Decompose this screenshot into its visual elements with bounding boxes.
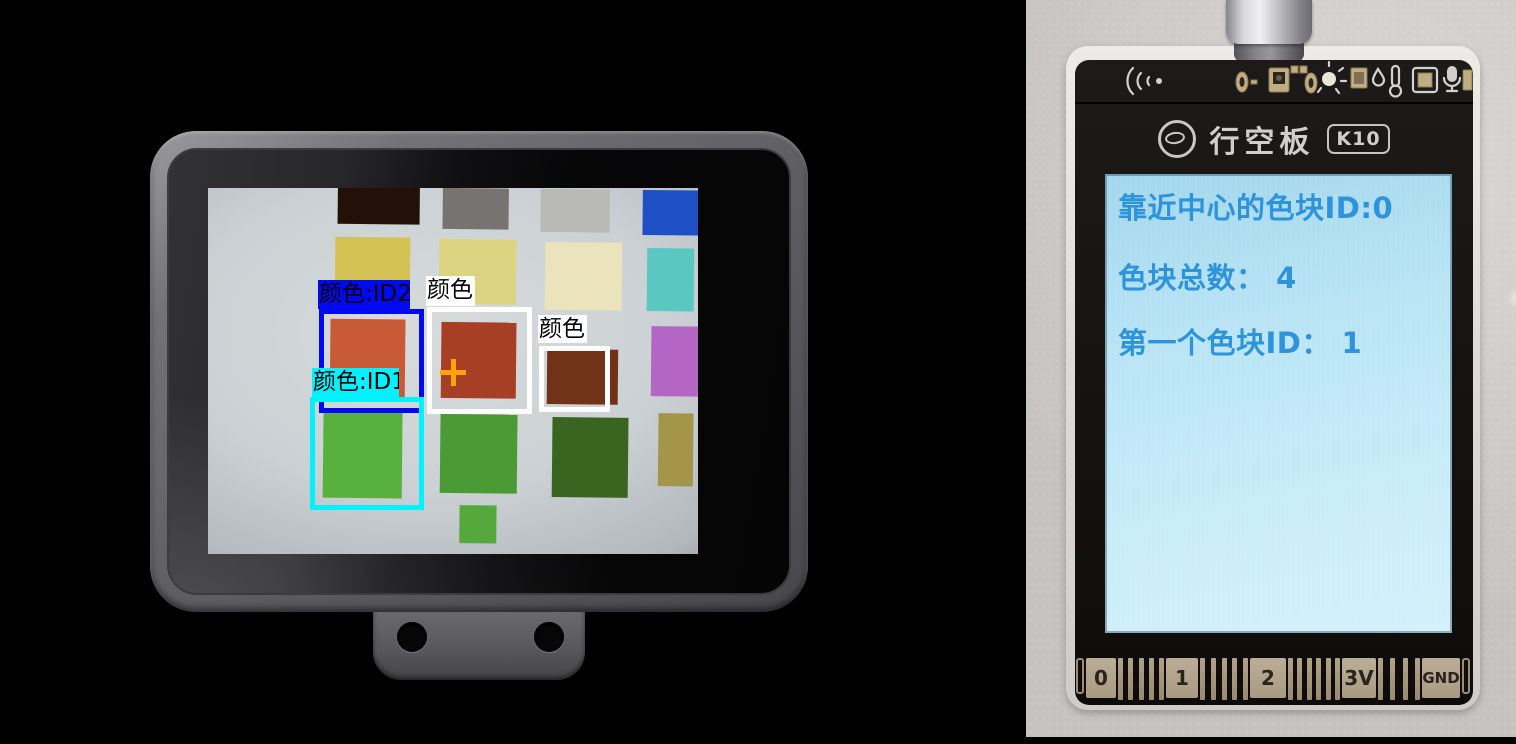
connector-finger <box>1378 658 1383 700</box>
detection-box-id1 <box>310 397 424 510</box>
monitor-screen: 颜色:ID2颜色颜色颜色:ID1 <box>167 148 791 595</box>
connector-pad-0: 0 <box>1086 658 1116 698</box>
detection-label-id1: 颜色:ID1 <box>312 368 399 398</box>
connector-finger <box>1243 658 1248 700</box>
humidity-droplet-icon <box>1373 69 1384 86</box>
connector-finger <box>1211 658 1216 700</box>
board-logo-row: 行空板 K10 <box>1075 116 1473 162</box>
detection-label-center: 颜色 <box>426 276 475 306</box>
microphone-icon <box>1444 66 1460 91</box>
pad-0-icon <box>1305 73 1317 93</box>
detection-label-right: 颜色 <box>538 315 587 343</box>
connector-finger <box>1232 658 1237 700</box>
connector-finger <box>1222 658 1227 700</box>
mount-hole-right <box>534 622 564 652</box>
connector-edge-notch <box>1076 658 1084 694</box>
connector-finger <box>1288 658 1293 700</box>
detection-box-right <box>539 346 610 412</box>
k10-display: 靠近中心的色块ID:0 色块总数： 4 第一个色块ID： 1 <box>1105 174 1452 633</box>
connector-finger <box>1128 658 1133 700</box>
sensor-strip-icons <box>1075 60 1473 102</box>
board-model-badge: K10 <box>1327 124 1389 154</box>
light-sensor-icon <box>1318 62 1346 93</box>
connector-finger-group <box>1288 658 1340 700</box>
connector-finger <box>1118 658 1123 700</box>
connector-finger <box>1316 658 1321 700</box>
board-logo-text: 行空板 <box>1209 117 1314 161</box>
usb-cable-sleeve <box>1226 0 1312 44</box>
mems-mic-icon <box>1269 66 1307 92</box>
camera-view: 颜色:ID2颜色颜色颜色:ID1 <box>208 188 698 554</box>
wifi-signal-icon <box>1127 68 1162 94</box>
component-icon <box>1463 70 1472 90</box>
connector-finger <box>1326 658 1331 700</box>
connector-finger <box>1200 658 1205 700</box>
connector-edge-notch <box>1462 658 1470 694</box>
connector-finger <box>1139 658 1144 700</box>
detection-label-id2: 颜色:ID2 <box>318 280 410 309</box>
k10-board: 行空板 K10 靠近中心的色块ID:0 色块总数： 4 第一个色块ID： 1 0… <box>1075 60 1473 705</box>
edge-connector: 0123VGND <box>1076 655 1470 701</box>
connector-pad-3V: 3V <box>1342 658 1376 698</box>
connector-finger <box>1307 658 1312 700</box>
connector-finger <box>1390 658 1395 700</box>
k10-photo-panel: 行空板 K10 靠近中心的色块ID:0 色块总数： 4 第一个色块ID： 1 0… <box>1026 0 1516 744</box>
connector-finger <box>1415 658 1420 700</box>
connector-finger <box>1149 658 1154 700</box>
connector-finger <box>1335 658 1340 700</box>
connector-pad-2: 2 <box>1250 658 1286 698</box>
unihiker-logo-icon <box>1158 120 1196 158</box>
connector-finger-group <box>1378 658 1420 700</box>
connector-pad-GND: GND <box>1422 658 1460 698</box>
mount-hole-left <box>397 622 427 652</box>
thermometer-icon <box>1390 66 1401 97</box>
camera-monitor: 颜色:ID2颜色颜色颜色:ID1 <box>150 131 808 612</box>
pad-0-icon <box>1236 72 1257 92</box>
display-line-2: 色块总数： 4 <box>1118 255 1297 297</box>
connector-finger-group <box>1118 658 1164 700</box>
bottom-black-bar <box>0 737 1516 744</box>
display-line-1: 靠近中心的色块ID:0 <box>1118 185 1393 227</box>
connector-finger-group <box>1200 658 1248 700</box>
detection-box-center <box>427 307 532 414</box>
connector-finger <box>1159 658 1164 700</box>
connector-pad-1: 1 <box>1166 658 1198 698</box>
chip-icon <box>1351 68 1367 88</box>
connector-finger <box>1403 658 1408 700</box>
connector-finger <box>1297 658 1302 700</box>
sensor-strip <box>1075 60 1473 104</box>
soc-chip-icon <box>1413 68 1437 92</box>
display-line-3: 第一个色块ID： 1 <box>1118 320 1362 362</box>
